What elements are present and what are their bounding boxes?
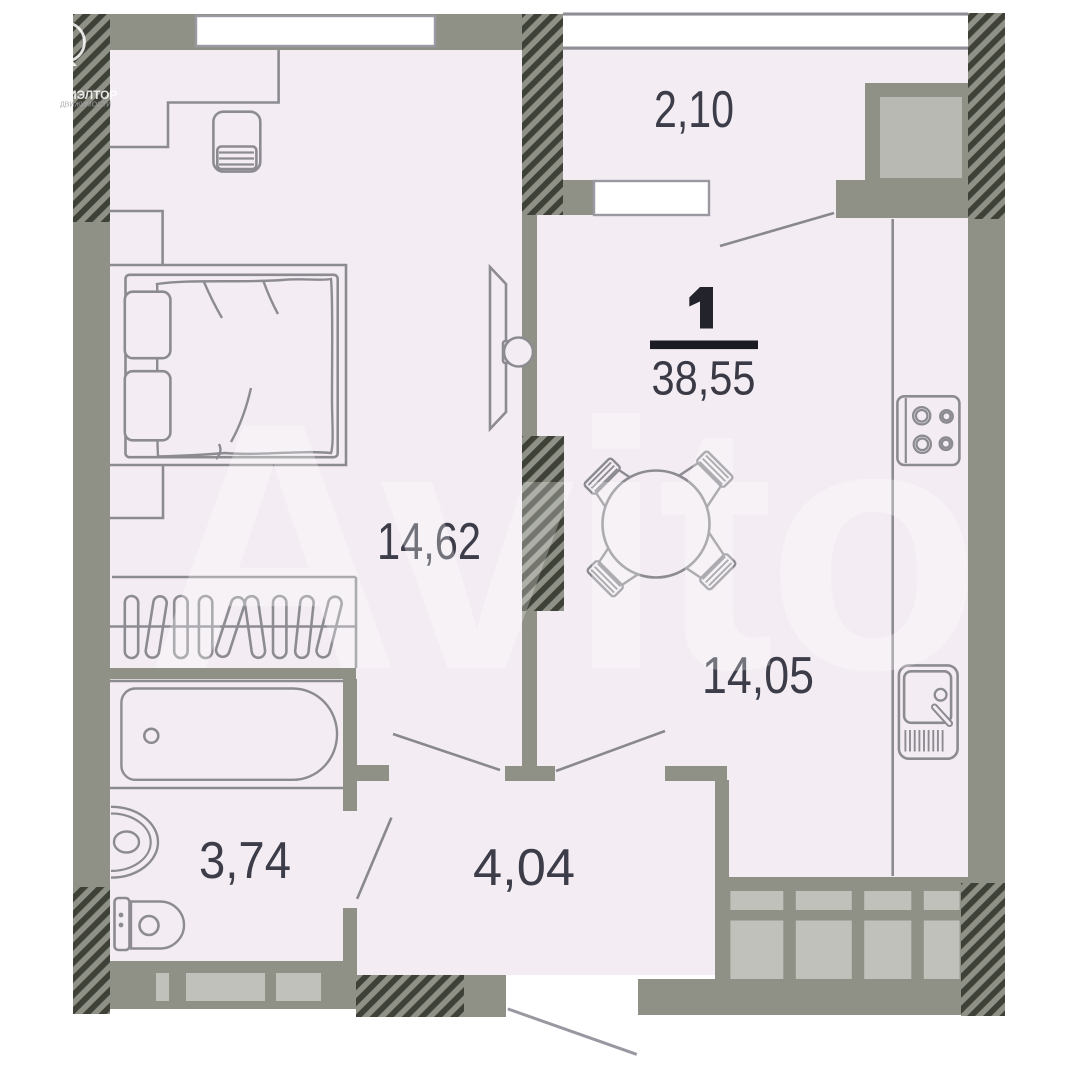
svg-text:2,10: 2,10 [654,81,734,139]
svg-text:4,04: 4,04 [473,839,575,897]
svg-text:ДВИЖИМОСТИ: ДВИЖИМОСТИ [60,102,111,109]
svg-text:РИЭЛТОР: РИЭЛТОР [60,88,118,102]
svg-text:3,74: 3,74 [199,832,291,890]
svg-text:Avito: Avito [147,349,974,743]
